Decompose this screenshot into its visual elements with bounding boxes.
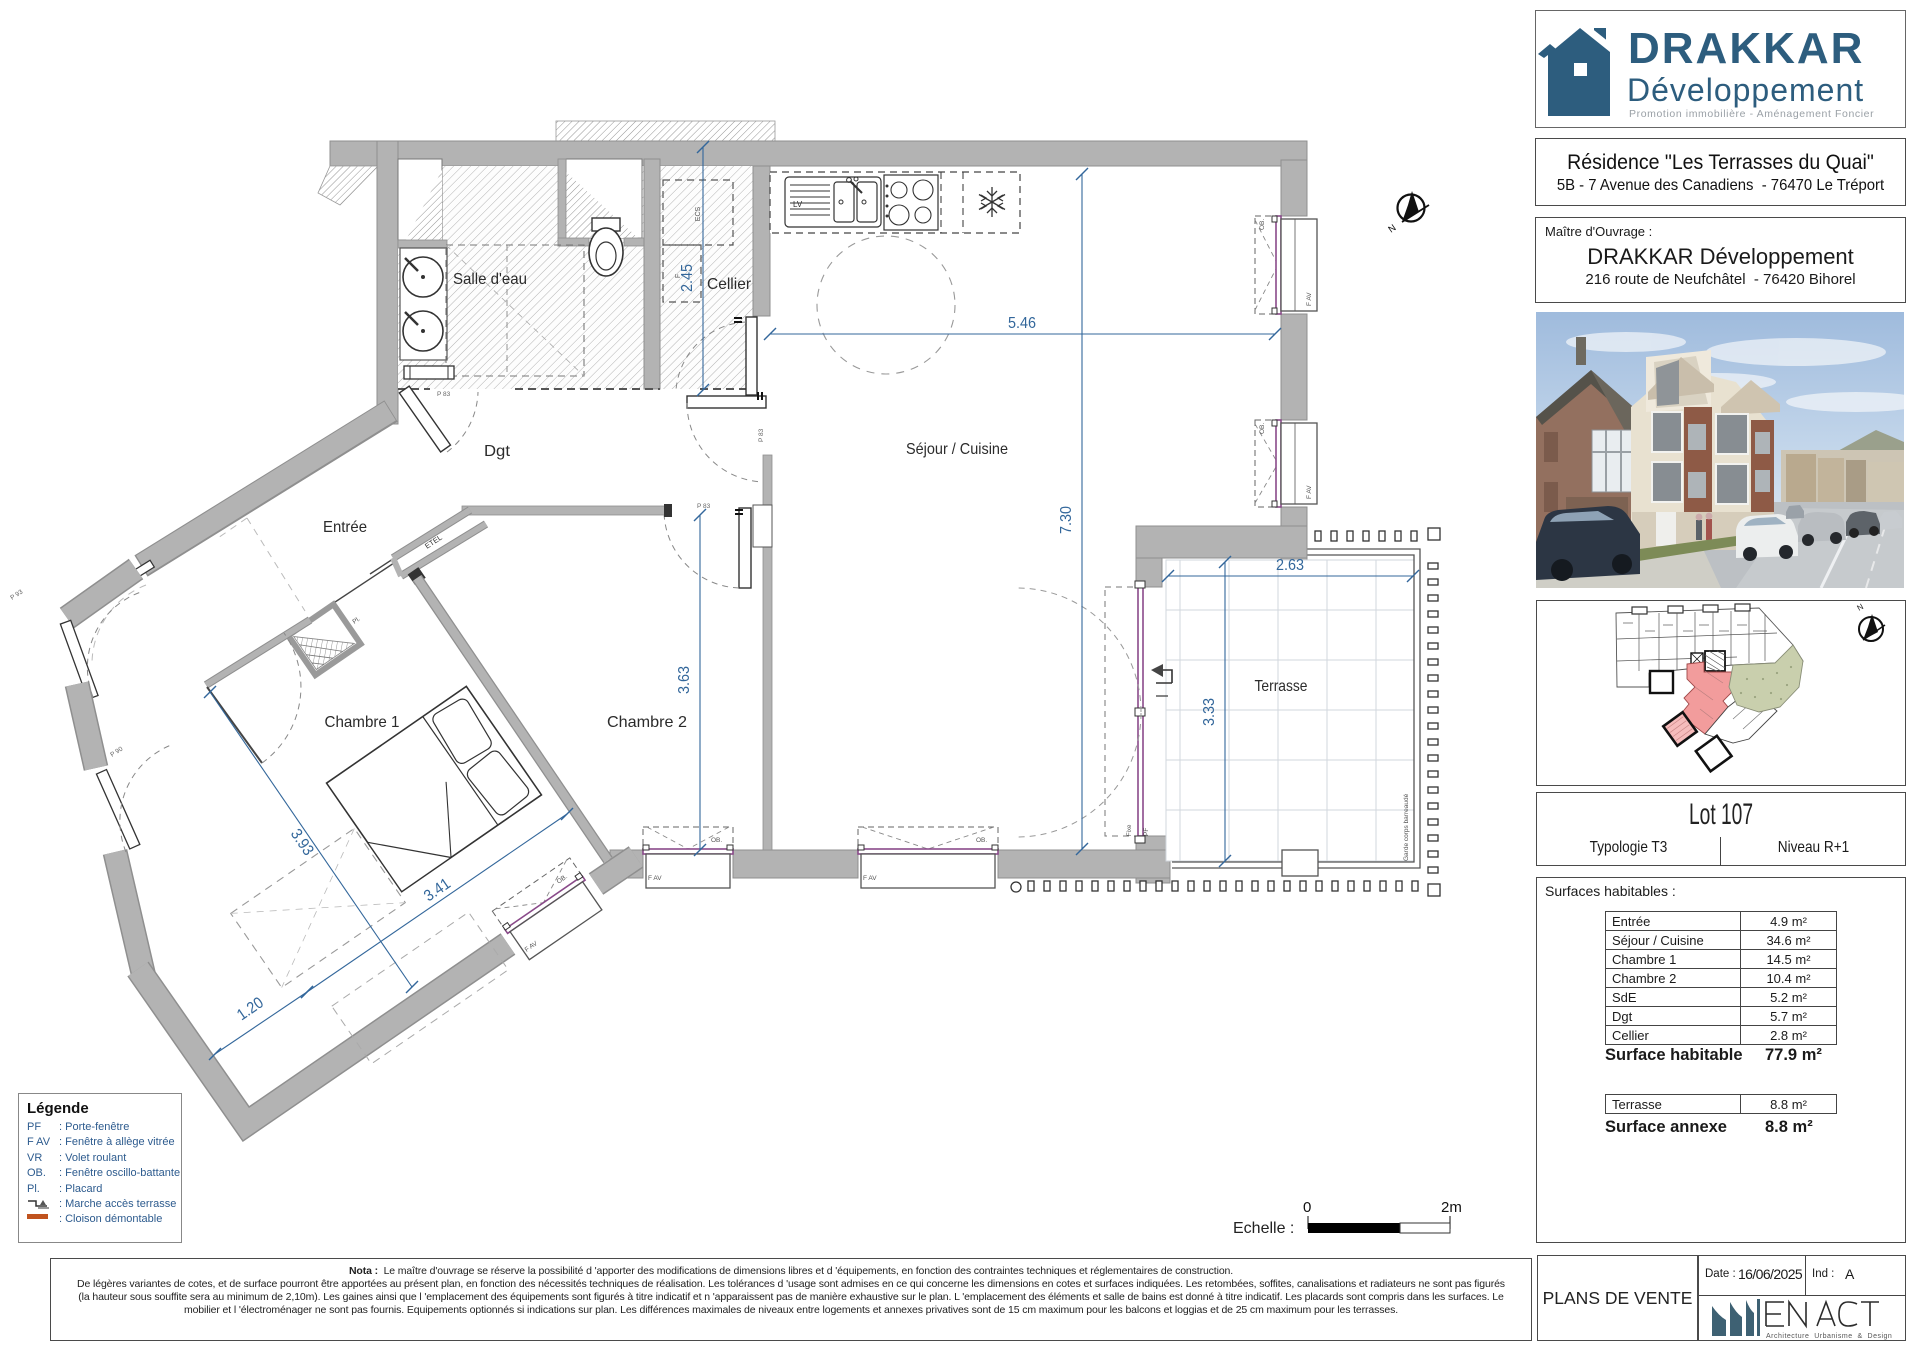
svg-text:F AV: F AV xyxy=(1306,485,1313,499)
svg-text:F AV: F AV xyxy=(1306,292,1313,306)
svg-text:Terrasse: Terrasse xyxy=(1255,678,1308,695)
svg-text:3.41: 3.41 xyxy=(421,875,454,905)
svg-text:Garde corps barreaudé: Garde corps barreaudé xyxy=(1403,793,1410,861)
svg-text:2m: 2m xyxy=(1441,1199,1462,1216)
svg-text:Fixe: Fixe xyxy=(1127,824,1133,836)
svg-text:Pl.: Pl. xyxy=(351,616,361,626)
svg-text:F AV: F AV xyxy=(648,875,662,882)
svg-text:P 83: P 83 xyxy=(758,428,765,442)
svg-text:3.93: 3.93 xyxy=(287,826,317,859)
svg-text:PF: PF xyxy=(1143,828,1150,836)
svg-text:5.46: 5.46 xyxy=(1008,315,1036,332)
svg-text:LV: LV xyxy=(793,200,803,209)
svg-text:3.63: 3.63 xyxy=(676,666,693,694)
svg-text:0: 0 xyxy=(1303,1199,1311,1216)
svg-text:P 90: P 90 xyxy=(109,745,124,758)
svg-text:Chambre 2: Chambre 2 xyxy=(607,714,687,731)
svg-text:P 83: P 83 xyxy=(697,503,711,510)
svg-text:OB.: OB. xyxy=(1259,423,1266,434)
svg-text:Développement: Développement xyxy=(1627,72,1864,108)
svg-text:2.45: 2.45 xyxy=(679,264,696,292)
svg-text:Séjour / Cuisine: Séjour / Cuisine xyxy=(906,441,1008,458)
svg-text:ECS: ECS xyxy=(695,206,702,221)
svg-text:1.20: 1.20 xyxy=(234,994,267,1024)
svg-text:Chambre 1: Chambre 1 xyxy=(325,714,400,731)
svg-text:Echelle :: Echelle : xyxy=(1233,1220,1294,1237)
svg-text:N: N xyxy=(1856,602,1866,613)
svg-text:Entrée: Entrée xyxy=(323,519,367,536)
svg-text:Promotion immobilière - Aménag: Promotion immobilière - Aménagement Fonc… xyxy=(1629,108,1874,120)
svg-text:P 93: P 93 xyxy=(9,588,24,601)
svg-text:P 83: P 83 xyxy=(437,391,451,398)
svg-text:DRAKKAR: DRAKKAR xyxy=(1628,24,1864,73)
svg-text:Architecture Urbanisme & De: Architecture Urbanisme & Design xyxy=(1766,1333,1892,1340)
svg-text:N: N xyxy=(1386,222,1398,235)
svg-text:Dgt: Dgt xyxy=(484,443,511,460)
svg-text:2.63: 2.63 xyxy=(1276,557,1304,574)
svg-text:7.30: 7.30 xyxy=(1058,506,1075,534)
svg-text:OB.: OB. xyxy=(976,837,987,844)
svg-text:F AV: F AV xyxy=(863,875,877,882)
svg-text:Cellier: Cellier xyxy=(707,276,752,293)
svg-text:OB.: OB. xyxy=(711,837,722,844)
svg-text:Salle d'eau: Salle d'eau xyxy=(453,271,527,288)
svg-text:OB.: OB. xyxy=(1259,219,1266,230)
svg-text:3.33: 3.33 xyxy=(1201,698,1218,726)
